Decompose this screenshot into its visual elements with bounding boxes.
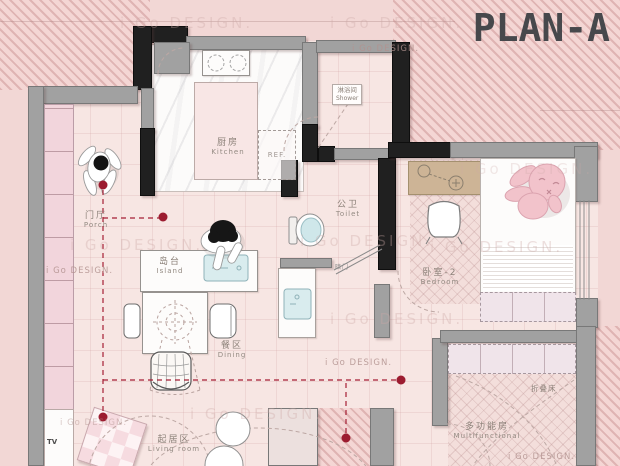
- watermark: i Go DESIGN.: [46, 266, 113, 276]
- watermark: i Go DESIGN.: [508, 452, 575, 462]
- stove: [202, 50, 250, 76]
- refrigerator-label: REF.: [268, 151, 286, 159]
- wall-segment: [140, 128, 155, 196]
- watermark: i Go DESIGN.: [352, 44, 419, 54]
- watermark-faint: i Go DESIGN.: [70, 236, 203, 254]
- shower-label-zh: 淋浴间: [336, 87, 358, 95]
- room-label-shower: 淋浴间 Shower: [332, 84, 362, 105]
- wall-segment: [28, 86, 138, 104]
- tv-label: TV: [47, 438, 57, 446]
- wall-segment: [432, 338, 448, 426]
- guide-line-2: [540, 110, 620, 111]
- wall-segment: [440, 330, 584, 343]
- shower-label-en: Shower: [336, 95, 358, 102]
- shoe-cabinet: [44, 104, 74, 410]
- wall-segment: [392, 42, 410, 144]
- watermark: i Go DESIGN.: [325, 358, 392, 368]
- dining-table: [142, 292, 208, 354]
- hidden-door-label: 暗门: [335, 262, 349, 271]
- island-counter: [140, 250, 258, 292]
- watermark-faint: i Go DESIGN.: [330, 310, 463, 328]
- watermark: i Go DESIGN.: [60, 418, 127, 428]
- watermark-faint: i Go DESIGN.: [300, 232, 433, 250]
- watermark-faint: i Go DESIGN.: [460, 160, 593, 178]
- bed-end-cabinet: [480, 292, 576, 322]
- watermark-faint: i Go DESIGN.: [330, 14, 463, 32]
- wall-segment: [133, 26, 152, 90]
- outside-hatch-entry: [318, 408, 370, 466]
- kitchen-cabinet: [194, 82, 258, 180]
- bed: [480, 158, 576, 294]
- watermark-faint: i Go DESIGN.: [190, 405, 323, 423]
- wall-segment: [28, 86, 44, 466]
- folding-bed-label: 折叠床: [531, 383, 557, 394]
- wall-segment: [280, 258, 332, 268]
- watermark-faint: i Go DESIGN.: [430, 238, 563, 256]
- wall-segment: [388, 142, 452, 158]
- wall-segment: [370, 408, 394, 466]
- wall-segment: [318, 146, 335, 162]
- vanity-cabinet: [278, 268, 316, 338]
- floor-plan-canvas: REF. TV: [0, 0, 620, 466]
- plan-title: PLAN-A: [473, 6, 610, 50]
- wall-segment: [302, 42, 318, 128]
- wall-segment: [378, 158, 396, 270]
- wall-segment: [141, 88, 154, 132]
- kitchen-counter: [154, 42, 190, 74]
- refrigerator: REF.: [258, 130, 296, 180]
- wall-segment: [576, 298, 598, 328]
- wall-segment: [186, 36, 306, 50]
- wardrobe: [448, 344, 576, 374]
- wall-segment: [576, 326, 596, 466]
- outside-hatch-bottomright: [596, 326, 620, 466]
- wall-segment: [302, 124, 318, 162]
- watermark-faint: i Go DESIGN.: [120, 14, 253, 32]
